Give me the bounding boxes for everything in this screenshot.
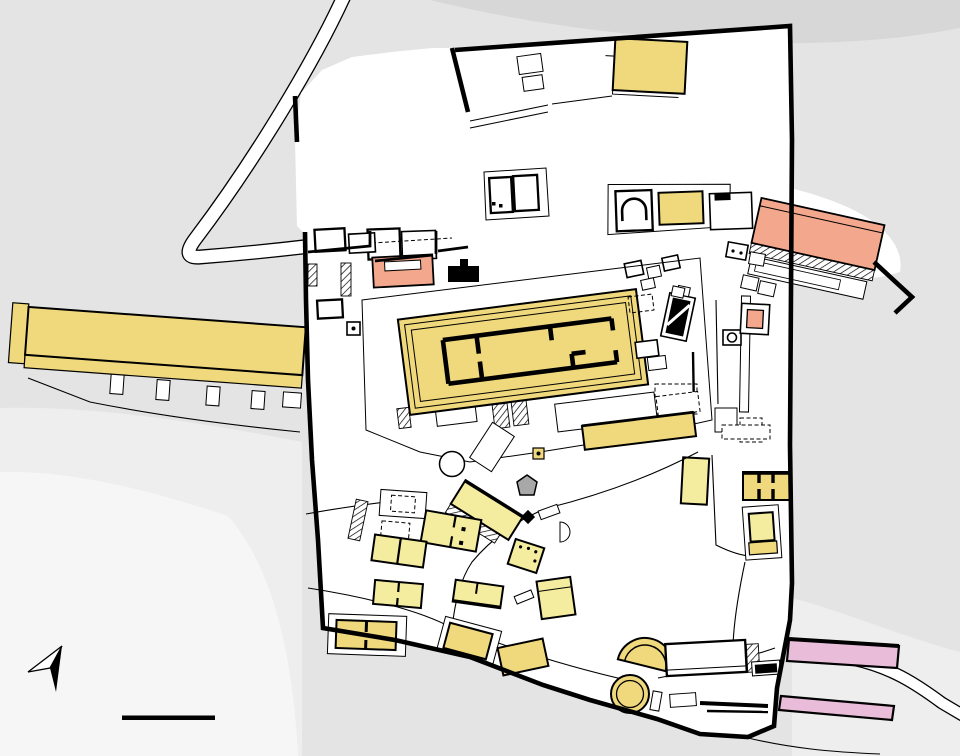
building-18	[373, 580, 423, 608]
building-29	[723, 330, 741, 345]
building-10	[603, 38, 687, 98]
arch-niche	[615, 190, 652, 231]
monument-8-circle	[440, 452, 465, 477]
site-plan-stage	[0, 0, 960, 756]
scale-bar	[122, 716, 215, 721]
building-37	[752, 660, 781, 676]
building-21	[742, 505, 782, 560]
theater-west-wall	[295, 96, 297, 142]
building-32	[740, 303, 770, 334]
site-plan-map	[0, 0, 960, 756]
building-36	[665, 640, 747, 676]
building-17	[537, 577, 576, 619]
building-9	[709, 192, 752, 229]
building-5	[743, 472, 791, 500]
monument-28	[533, 448, 544, 459]
building-20	[681, 457, 709, 504]
